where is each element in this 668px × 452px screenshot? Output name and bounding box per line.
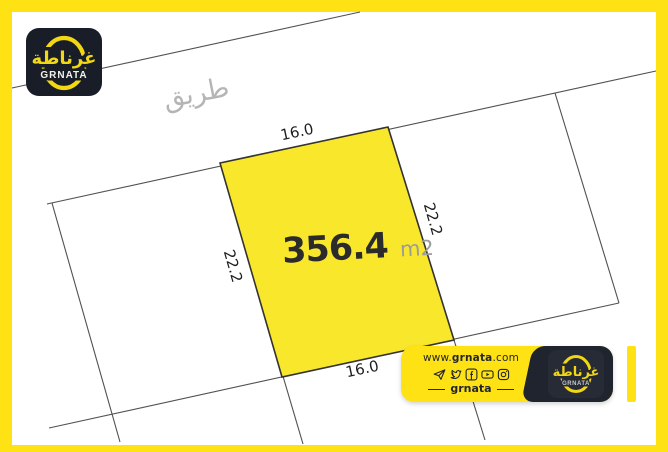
social-handle: grnata [413,383,529,395]
plot-area-unit: m2 [399,236,434,262]
banner-logo-tile: غرناطة GRNATA [548,350,604,398]
grnata-logo-art: غرناطة GRNATA [26,28,102,96]
footer-banner: www.grnata.com [401,346,613,402]
right-plot-right-edge [555,93,619,303]
handle-line-right [497,389,514,390]
road-label: طريق [161,72,232,115]
website-name: grnata [452,352,493,364]
handle-line-left [428,389,445,390]
social-icons-row [413,367,529,381]
youtube-icon [481,368,494,381]
grnata-logo: غرناطة GRNATA [26,28,102,96]
handle-text: grnata [450,383,491,395]
telegram-icon [433,368,446,381]
banner-logo-art: غرناطة GRNATA [548,350,604,398]
banner-contact-block: www.grnata.com [413,353,529,395]
website-url: www.grnata.com [413,353,529,364]
dim-left-label: 22.2 [220,247,247,284]
flyer: طريق 16.0 16.0 22.2 22.2 356.4 m2 غرناطة… [0,0,668,452]
plot-area-value: 356.4 [281,226,389,271]
website-suffix: .com [492,352,519,364]
dim-top-label: 16.0 [279,120,315,145]
logo-latin-text: GRNATA [40,70,87,81]
dim-right-label: 22.2 [420,200,447,237]
instagram-icon [497,368,510,381]
left-plot-left-edge [52,203,120,442]
twitter-icon [449,368,462,381]
website-prefix: www. [423,352,452,364]
banner-logo-latin: GRNATA [562,381,590,387]
logo-arabic-text: غرناطة [32,48,97,69]
facebook-icon [465,368,478,381]
banner-logo-arabic: غرناطة [553,365,600,380]
yellow-accent-bar [627,346,636,402]
